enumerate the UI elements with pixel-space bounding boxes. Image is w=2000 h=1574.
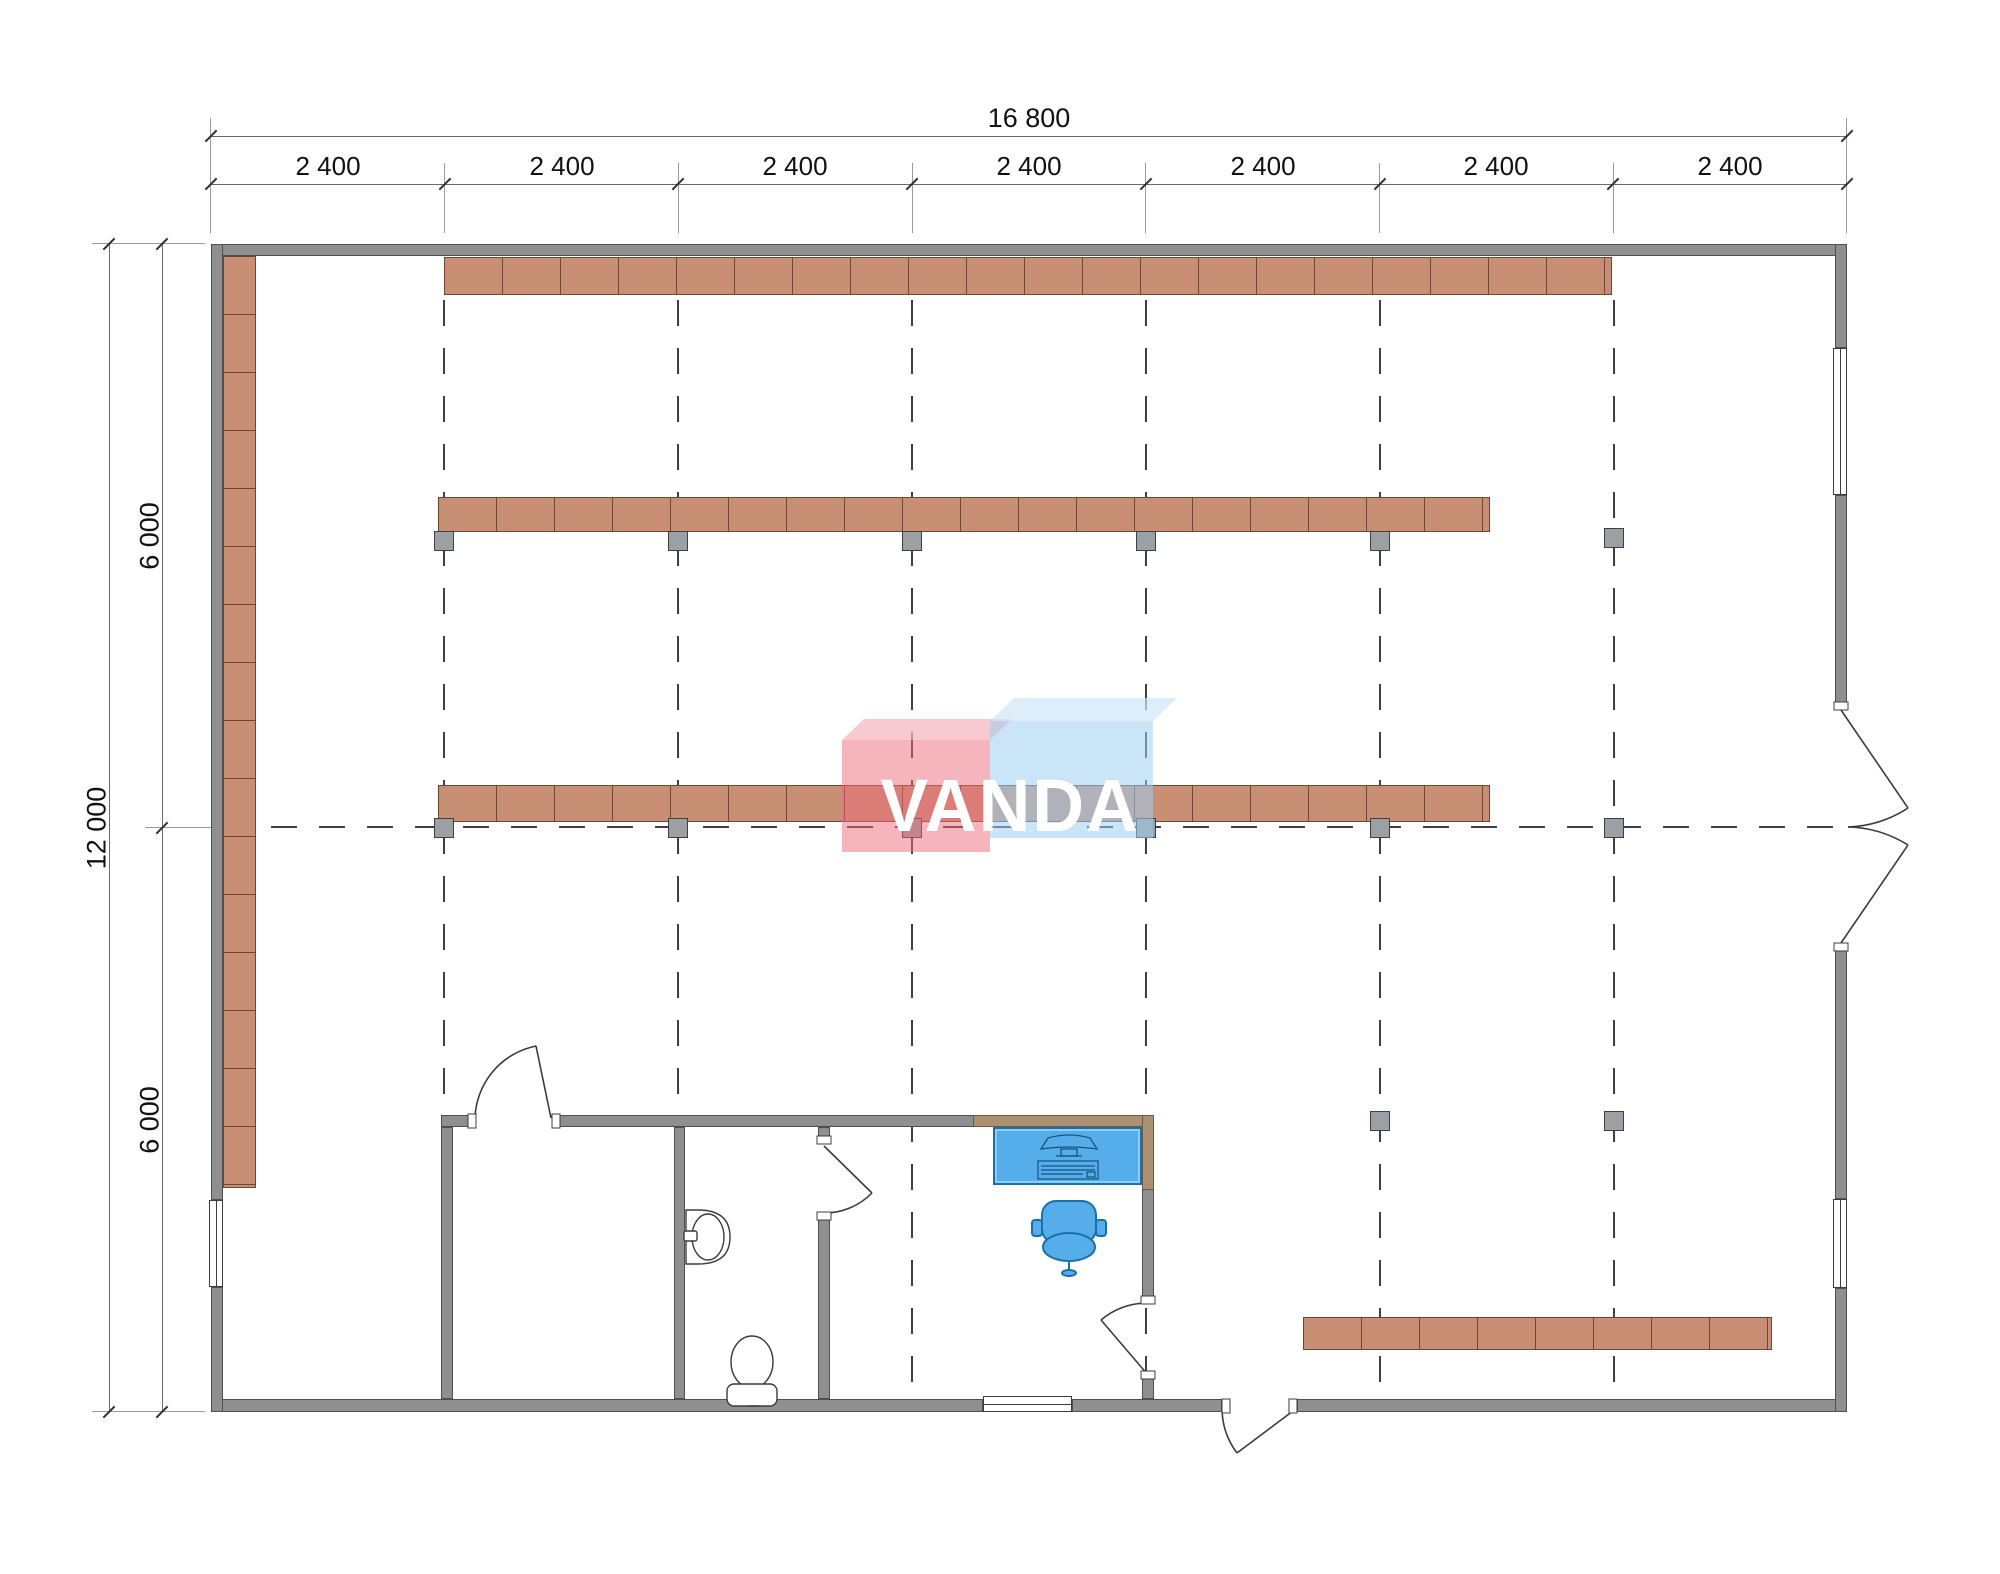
sink [684, 1210, 730, 1264]
door-jamb [1222, 1399, 1230, 1413]
dimension-label-segment: 6 000 [135, 502, 166, 570]
dimension-label-overall-width: 16 800 [988, 103, 1071, 134]
floor-plan-canvas: VANDA 16 800 2 400 2 400 2 400 2 400 2 4… [0, 0, 2000, 1574]
dimension-label-segment: 6 000 [135, 1086, 166, 1154]
computer-monitor-icon [1041, 1135, 1097, 1156]
dimension-label-segment: 2 400 [529, 151, 594, 182]
dimension-label-segment: 2 400 [996, 151, 1061, 182]
door-jamb [552, 1114, 560, 1128]
dimension-line-top-segments [211, 184, 1847, 185]
door-exterior-bottom [1222, 1408, 1297, 1453]
door-bathroom [824, 1146, 872, 1213]
vanda-logo-text: VANDA [880, 763, 1140, 848]
dimension-label-segment: 2 400 [1697, 151, 1762, 182]
door-jamb [1289, 1399, 1297, 1413]
office-chair [1032, 1201, 1106, 1276]
door-jamb [1141, 1371, 1155, 1379]
keyboard-icon [1038, 1161, 1098, 1179]
dimension-line-overall-width [211, 136, 1847, 137]
dimension-label-segment: 2 400 [1463, 151, 1528, 182]
dimension-label-segment: 2 400 [762, 151, 827, 182]
extension-line [1613, 163, 1614, 233]
extension-line [444, 163, 445, 233]
door-jamb [468, 1114, 476, 1128]
door-left-room [475, 1046, 551, 1118]
door-entrance-double-lower [1841, 827, 1908, 943]
dimension-label-segment: 2 400 [1230, 151, 1295, 182]
door-jamb [1834, 702, 1848, 710]
extension-line [912, 163, 913, 233]
logo-pink-box-top-face [842, 719, 1012, 740]
extension-line [678, 163, 679, 233]
door-entrance-double-upper [1841, 710, 1908, 827]
toilet [727, 1336, 777, 1406]
extension-line [1379, 163, 1380, 233]
door-jamb [1834, 943, 1848, 951]
extension-line [1145, 163, 1146, 233]
dimension-label-overall-height: 12 000 [82, 787, 113, 870]
door-office [1101, 1303, 1148, 1375]
logo-blue-box-top-face [990, 698, 1177, 721]
door-jamb [817, 1212, 831, 1220]
extension-line [145, 827, 211, 828]
door-jamb [817, 1136, 831, 1144]
dimension-label-segment: 2 400 [295, 151, 360, 182]
door-jamb [1141, 1296, 1155, 1304]
